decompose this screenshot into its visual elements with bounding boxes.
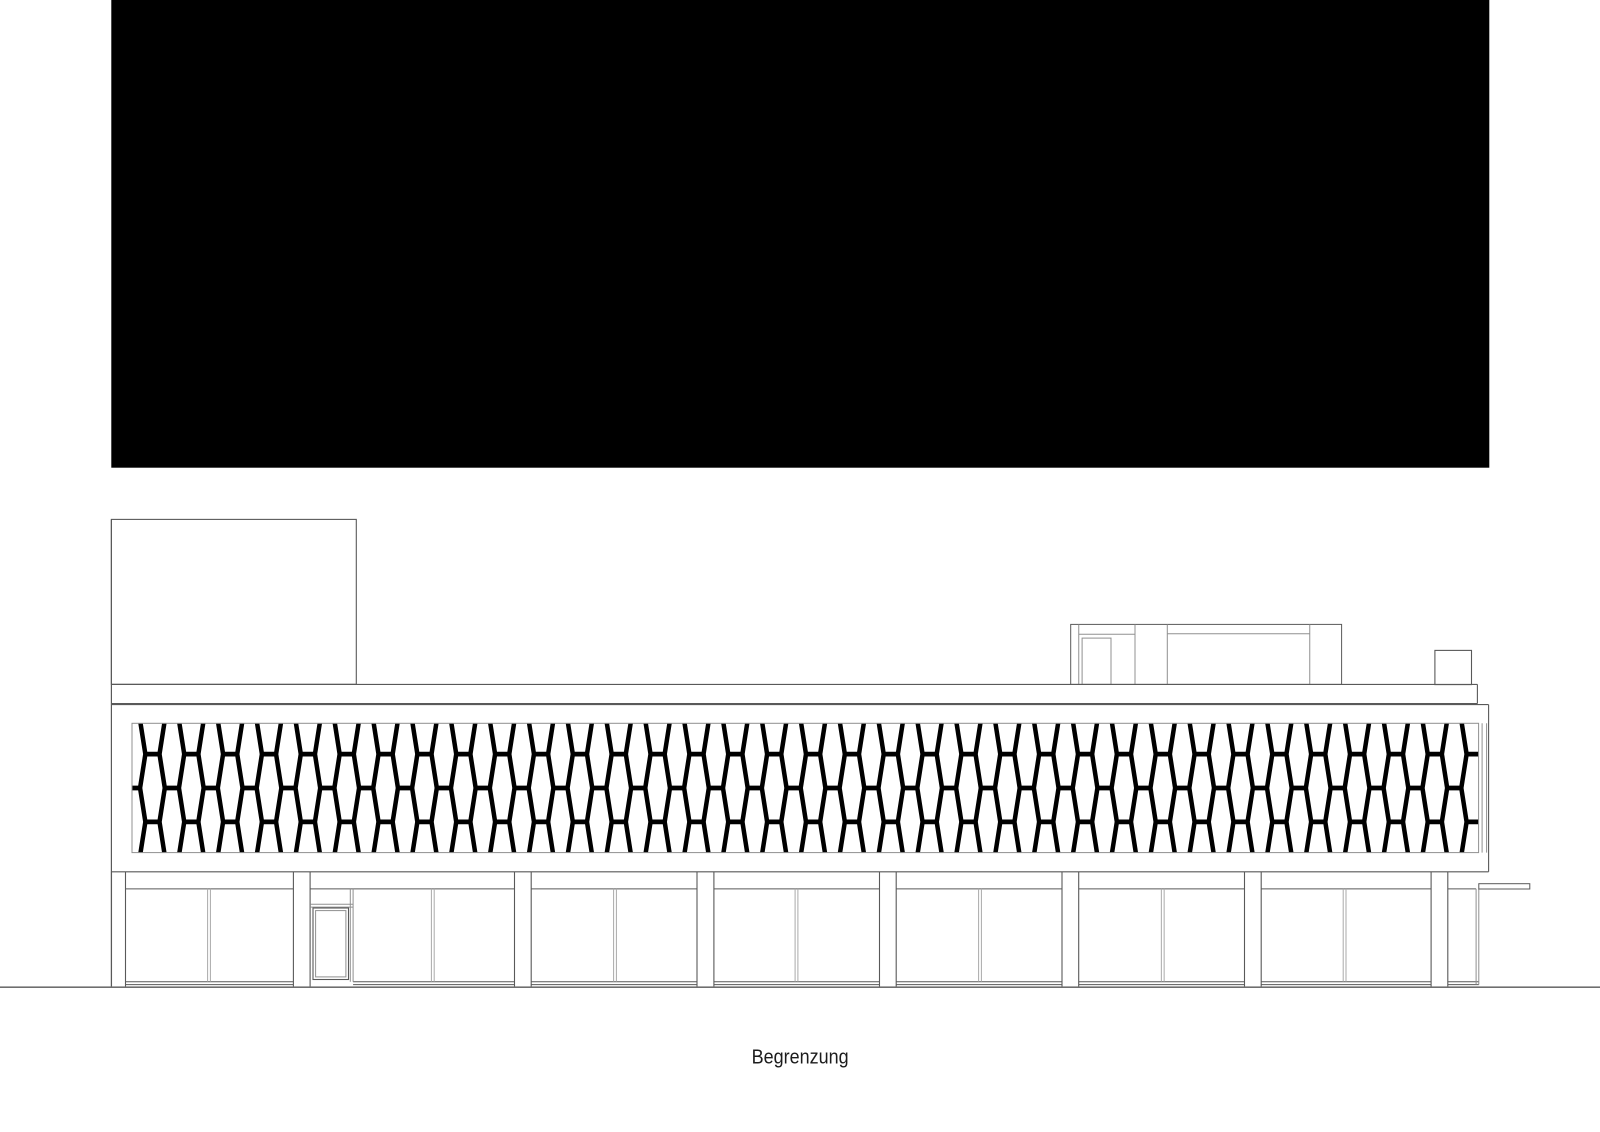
svg-text:Begrenzung: Begrenzung xyxy=(752,1045,849,1068)
